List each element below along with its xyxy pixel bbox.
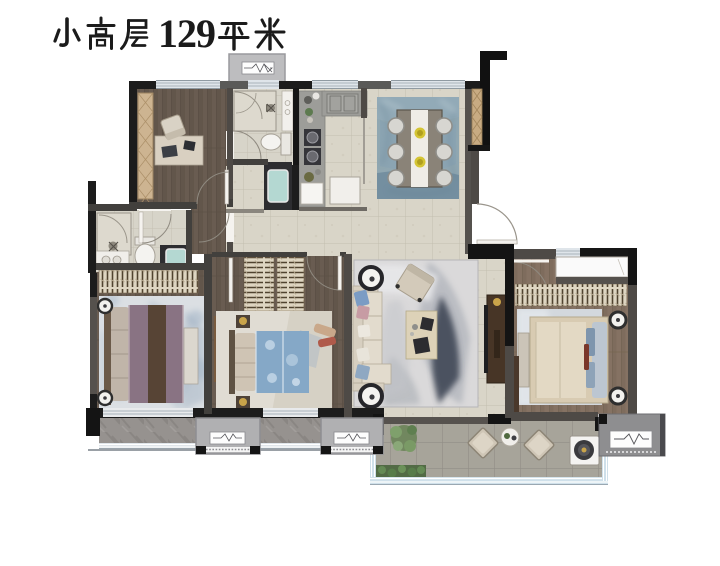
- svg-text:129: 129: [158, 11, 215, 56]
